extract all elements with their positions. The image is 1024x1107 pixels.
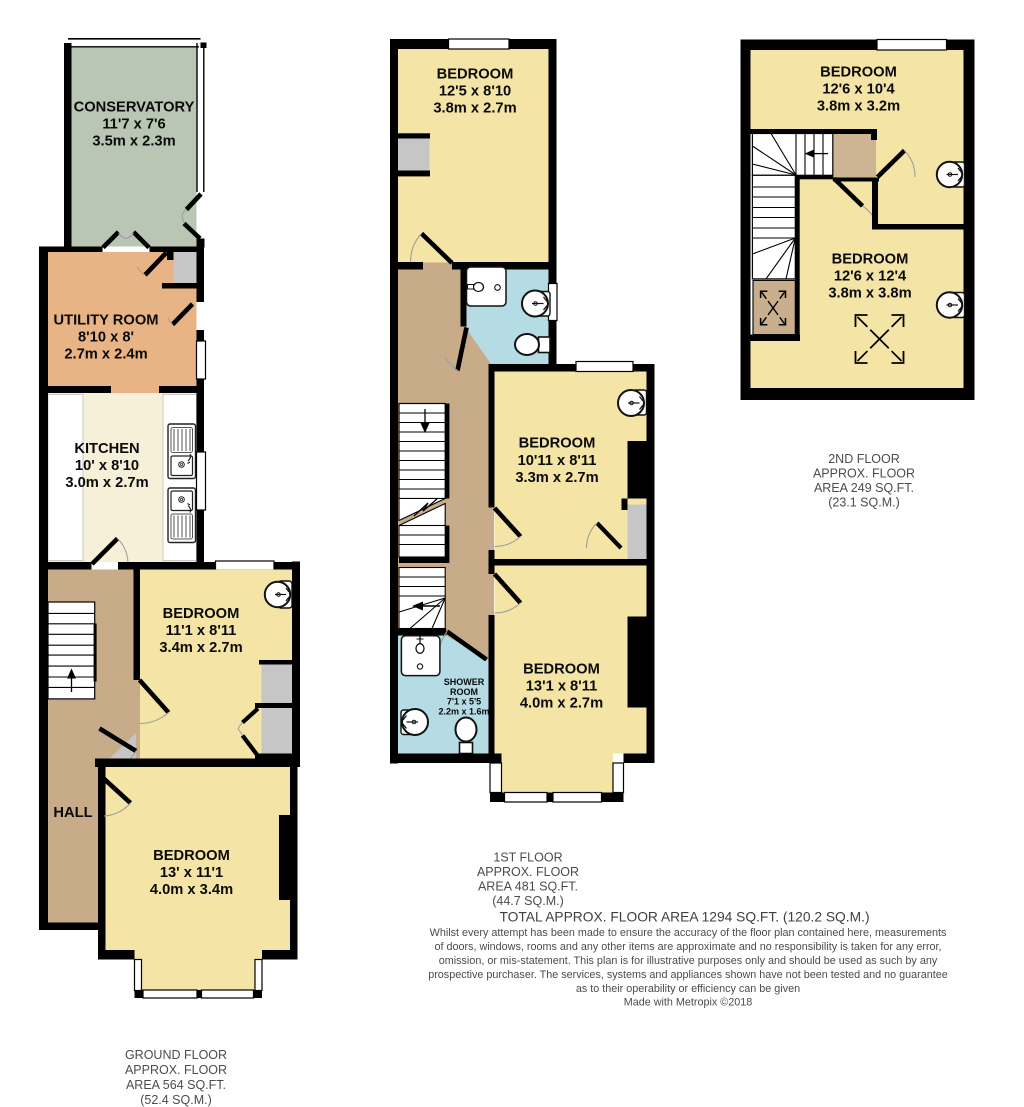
svg-text:omission, or mis-statement. Th: omission, or mis-statement. This plan is… — [439, 955, 938, 967]
svg-text:7'1 x 5'5: 7'1 x 5'5 — [447, 697, 481, 707]
svg-text:12'6 x 10'4: 12'6 x 10'4 — [822, 82, 895, 98]
svg-text:8'10 x 8': 8'10 x 8' — [78, 330, 134, 346]
svg-text:HALL: HALL — [53, 805, 92, 821]
svg-text:prospective purchaser. The ser: prospective purchaser. The services, sys… — [428, 969, 948, 981]
svg-text:AREA 564 SQ.FT.: AREA 564 SQ.FT. — [126, 1078, 226, 1092]
svg-text:4.0m x 3.4m: 4.0m x 3.4m — [150, 882, 233, 898]
svg-text:Whilst every attempt has been: Whilst every attempt has been made to en… — [430, 927, 947, 939]
svg-text:3.8m x 2.7m: 3.8m x 2.7m — [433, 101, 516, 117]
svg-text:APPROX. FLOOR: APPROX. FLOOR — [125, 1063, 227, 1077]
svg-text:2ND FLOOR: 2ND FLOOR — [828, 452, 900, 466]
svg-text:ROOM: ROOM — [450, 687, 478, 697]
svg-text:GROUND FLOOR: GROUND FLOOR — [125, 1048, 227, 1062]
svg-text:CONSERVATORY: CONSERVATORY — [74, 100, 195, 116]
svg-text:APPROX. FLOOR: APPROX. FLOOR — [477, 865, 579, 879]
svg-text:UTILITY ROOM: UTILITY ROOM — [54, 313, 159, 329]
svg-text:3.4m x 2.7m: 3.4m x 2.7m — [159, 640, 242, 656]
svg-text:10'11 x 8'11: 10'11 x 8'11 — [518, 453, 597, 469]
svg-text:BEDROOM: BEDROOM — [163, 606, 240, 622]
svg-text:10' x 8'10: 10' x 8'10 — [75, 458, 139, 474]
svg-text:(23.1 SQ.M.): (23.1 SQ.M.) — [828, 496, 900, 510]
svg-text:BEDROOM: BEDROOM — [519, 436, 596, 452]
svg-text:4.0m x 2.7m: 4.0m x 2.7m — [520, 696, 603, 712]
svg-text:2.2m x 1.6m: 2.2m x 1.6m — [438, 707, 489, 717]
svg-text:12'6 x 12'4: 12'6 x 12'4 — [834, 269, 907, 285]
svg-text:2.7m x 2.4m: 2.7m x 2.4m — [64, 347, 147, 363]
svg-text:1ST FLOOR: 1ST FLOOR — [493, 851, 562, 865]
svg-text:SHOWER: SHOWER — [444, 677, 485, 687]
svg-text:TOTAL APPROX. FLOOR AREA 1294: TOTAL APPROX. FLOOR AREA 1294 SQ.FT. (12… — [499, 910, 869, 925]
svg-text:BEDROOM: BEDROOM — [523, 662, 600, 678]
svg-text:3.8m x 3.2m: 3.8m x 3.2m — [817, 99, 900, 115]
svg-text:3.8m x 3.8m: 3.8m x 3.8m — [828, 286, 911, 302]
svg-text:BEDROOM: BEDROOM — [437, 67, 514, 83]
svg-text:BEDROOM: BEDROOM — [832, 252, 909, 268]
svg-text:BEDROOM: BEDROOM — [153, 848, 230, 864]
svg-text:BEDROOM: BEDROOM — [820, 65, 897, 81]
svg-text:as to their operability or eff: as to their operability or efficiency ca… — [576, 983, 800, 995]
svg-text:11'7 x 7'6: 11'7 x 7'6 — [102, 117, 165, 133]
svg-text:(44.7 SQ.M.): (44.7 SQ.M.) — [492, 894, 564, 908]
svg-text:3.3m x 2.7m: 3.3m x 2.7m — [515, 470, 598, 486]
svg-text:13'1 x 8'11: 13'1 x 8'11 — [526, 679, 598, 695]
svg-text:11'1 x 8'11: 11'1 x 8'11 — [166, 623, 237, 639]
svg-text:13' x 11'1: 13' x 11'1 — [160, 865, 223, 881]
svg-text:AREA 481 SQ.FT.: AREA 481 SQ.FT. — [478, 880, 578, 894]
svg-text:AREA 249 SQ.FT.: AREA 249 SQ.FT. — [814, 481, 914, 495]
svg-text:12'5 x 8'10: 12'5 x 8'10 — [439, 84, 511, 100]
svg-text:APPROX. FLOOR: APPROX. FLOOR — [813, 467, 915, 481]
svg-text:3.0m x 2.7m: 3.0m x 2.7m — [65, 475, 148, 491]
svg-text:3.5m x 2.3m: 3.5m x 2.3m — [92, 134, 175, 150]
svg-text:(52.4 SQ.M.): (52.4 SQ.M.) — [140, 1093, 212, 1107]
svg-text:of doors, windows, rooms and a: of doors, windows, rooms and any other i… — [434, 941, 941, 953]
svg-text:Made with Metropix ©2018: Made with Metropix ©2018 — [624, 997, 753, 1009]
svg-text:KITCHEN: KITCHEN — [74, 441, 139, 457]
